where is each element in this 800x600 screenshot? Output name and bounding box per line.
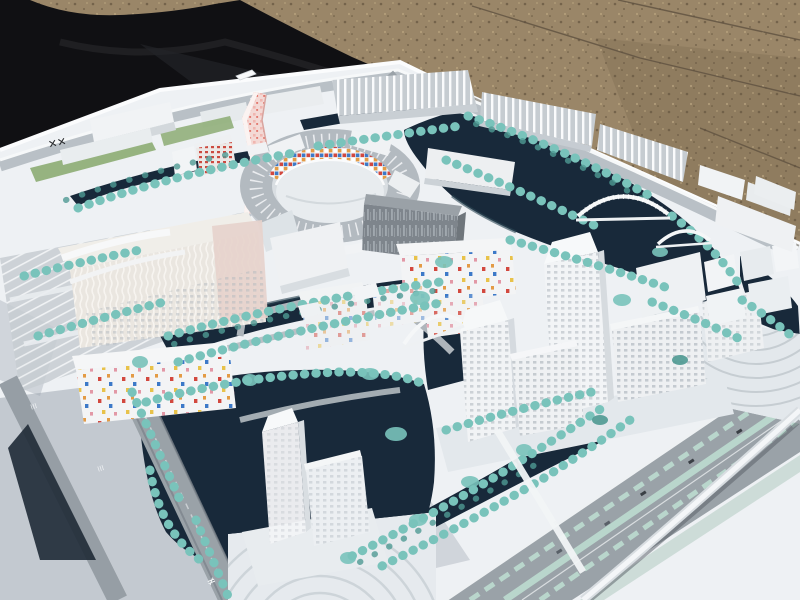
model-photograph: ✕✕ ☰ ☰ ≠ ≡	[0, 0, 800, 600]
